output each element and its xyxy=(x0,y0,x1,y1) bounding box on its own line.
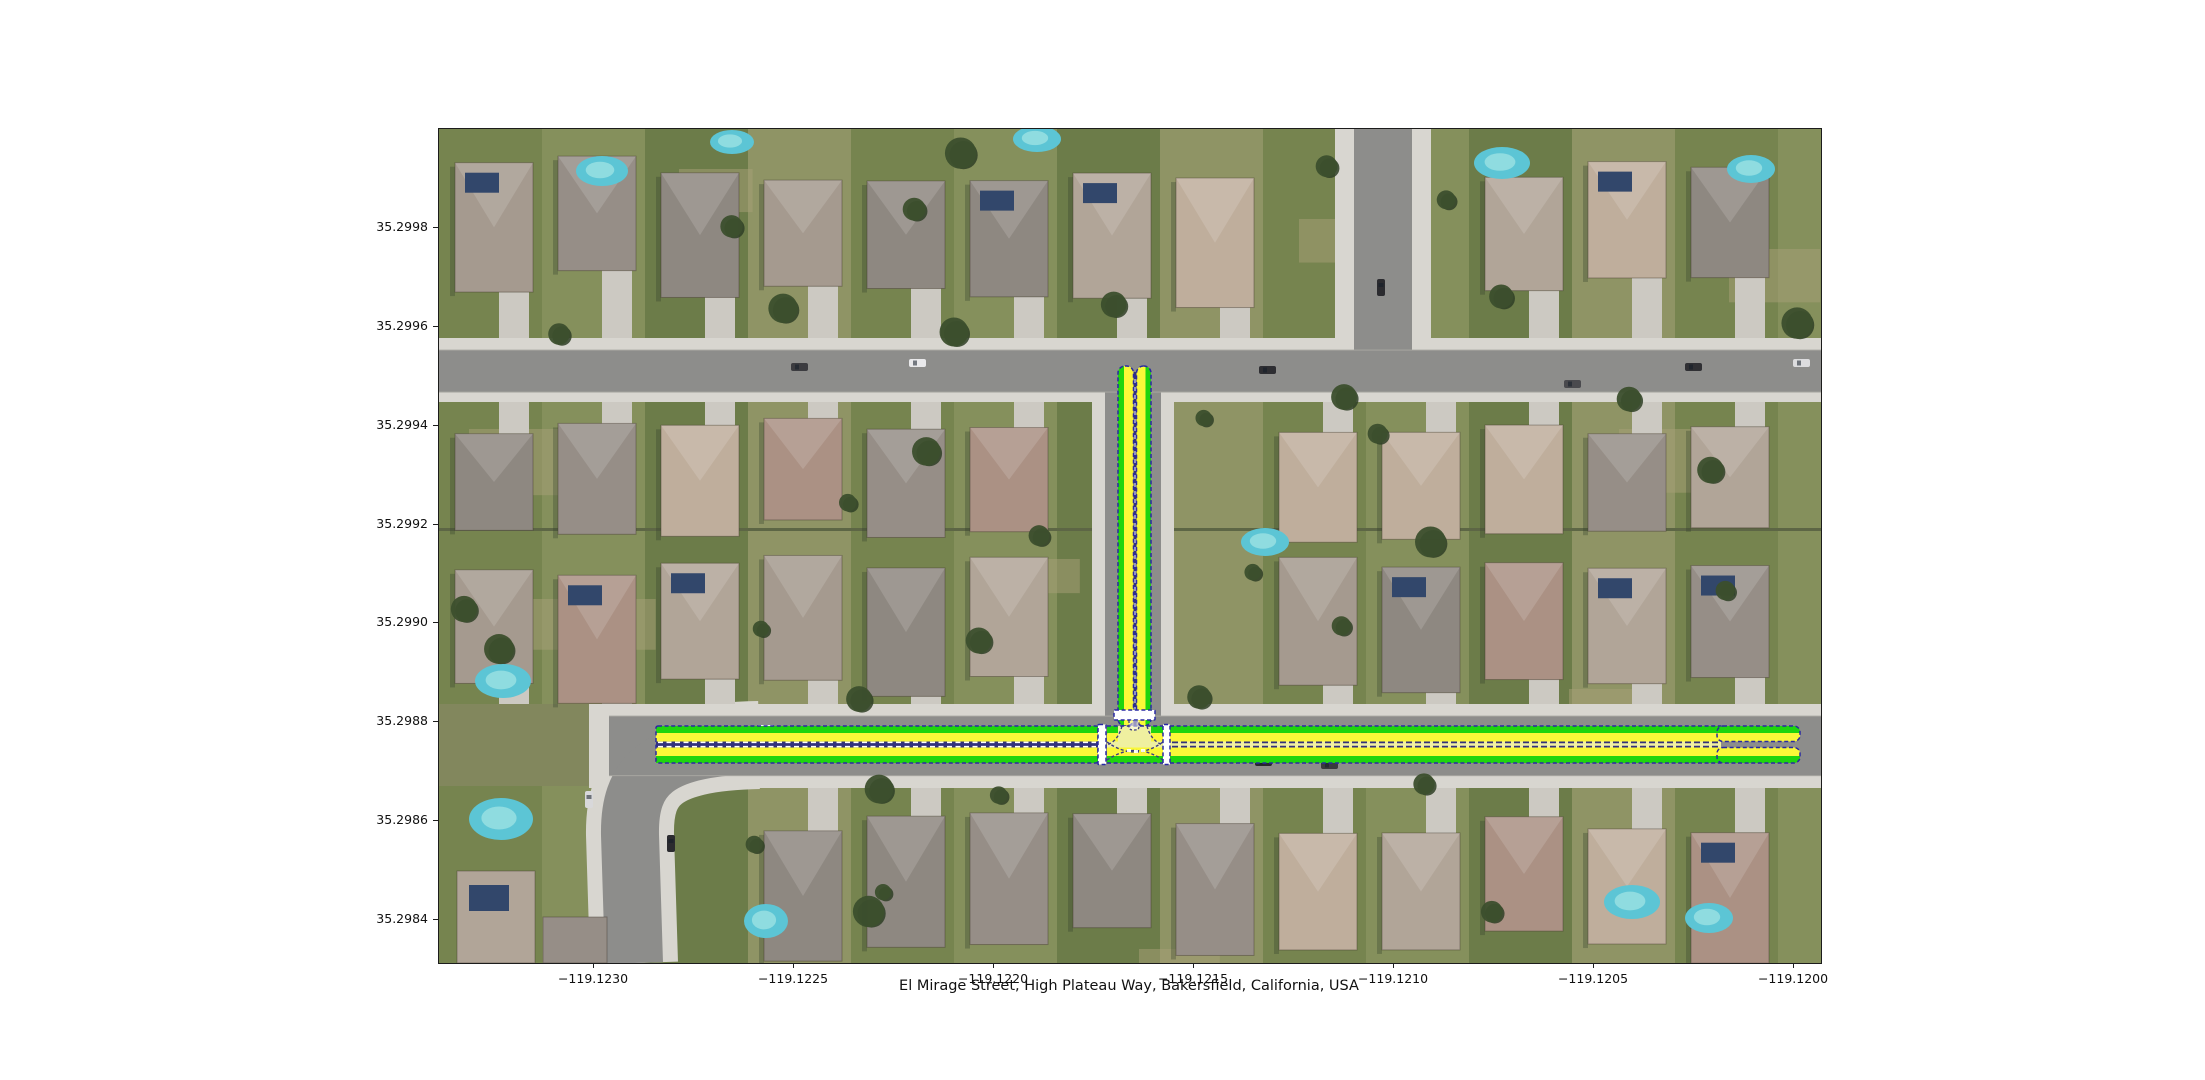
car xyxy=(1377,279,1385,296)
tree xyxy=(875,884,891,900)
y-tick-mark xyxy=(433,524,438,525)
y-tick-mark xyxy=(433,721,438,722)
tree xyxy=(1316,155,1338,177)
car xyxy=(791,363,808,371)
tree xyxy=(746,836,763,853)
solar-panel xyxy=(1598,578,1632,598)
solar-panel xyxy=(568,585,602,605)
tree xyxy=(548,323,570,345)
tree xyxy=(1617,387,1642,412)
tree xyxy=(720,215,742,237)
y-tick-mark xyxy=(433,820,438,821)
tree xyxy=(990,786,1007,803)
tree xyxy=(1481,901,1503,923)
x-tick-mark xyxy=(593,963,594,968)
map-axes xyxy=(438,128,1822,964)
y-tick-label: 35.2994 xyxy=(366,417,428,432)
y-tick-mark xyxy=(433,425,438,426)
y-tick-label: 35.2990 xyxy=(366,614,428,629)
car xyxy=(1564,380,1581,388)
solar-panel xyxy=(671,573,705,593)
tree xyxy=(966,628,992,654)
car xyxy=(585,791,593,808)
house xyxy=(457,871,535,963)
x-tick-label: −119.1200 xyxy=(1758,971,1828,986)
y-tick-label: 35.2988 xyxy=(366,713,428,728)
tree xyxy=(451,596,477,622)
solar-panel xyxy=(1392,577,1426,597)
tree xyxy=(1101,292,1127,318)
solar-panel xyxy=(1083,183,1117,203)
tree xyxy=(1331,384,1357,410)
x-tick-mark xyxy=(793,963,794,968)
tree xyxy=(1415,526,1446,557)
house xyxy=(543,917,607,963)
tree xyxy=(1489,285,1513,309)
satellite-imagery xyxy=(439,129,1821,963)
x-tick-label: −119.1215 xyxy=(1158,971,1228,986)
tree xyxy=(865,775,894,804)
u-turn-marking xyxy=(1129,721,1139,731)
tree xyxy=(1029,525,1050,546)
tree xyxy=(484,634,514,664)
solar-panel xyxy=(1701,843,1735,863)
car xyxy=(909,359,926,367)
x-tick-mark xyxy=(993,963,994,968)
tree xyxy=(1195,410,1211,426)
car xyxy=(1259,366,1276,374)
x-tick-label: −119.1205 xyxy=(1558,971,1628,986)
crosswalk-east xyxy=(1163,725,1170,765)
tree xyxy=(1697,457,1724,484)
tree xyxy=(1368,424,1388,444)
x-tick-label: −119.1230 xyxy=(558,971,628,986)
solar-panel xyxy=(1598,172,1632,192)
tree xyxy=(940,318,969,347)
tree xyxy=(1332,616,1351,635)
y-tick-label: 35.2992 xyxy=(366,516,428,531)
tree xyxy=(768,294,797,323)
x-tick-label: −119.1225 xyxy=(758,971,828,986)
car xyxy=(1793,359,1810,367)
y-tick-mark xyxy=(433,919,438,920)
x-tick-label: −119.1220 xyxy=(958,971,1028,986)
crosswalk-west xyxy=(1098,725,1106,765)
tree xyxy=(1716,581,1735,600)
tree xyxy=(1413,773,1434,794)
car xyxy=(1685,363,1702,371)
y-tick-mark xyxy=(433,227,438,228)
x-tick-mark xyxy=(1393,963,1394,968)
tree xyxy=(912,437,940,465)
y-tick-label: 35.2986 xyxy=(366,812,428,827)
tree xyxy=(839,494,856,511)
matplotlib-figure: El Mirage Street, High Plateau Way, Bake… xyxy=(0,0,2205,1080)
car xyxy=(667,835,675,852)
tree xyxy=(1187,685,1211,709)
solar-panel xyxy=(465,173,499,193)
tree xyxy=(846,686,872,712)
tree xyxy=(903,198,926,221)
tree xyxy=(945,137,976,168)
crosswalk-north xyxy=(1114,710,1155,720)
y-tick-mark xyxy=(433,622,438,623)
x-tick-label: −119.1210 xyxy=(1358,971,1428,986)
x-tick-mark xyxy=(1793,963,1794,968)
tree xyxy=(1437,190,1456,209)
tree xyxy=(1244,564,1261,581)
y-tick-label: 35.2984 xyxy=(366,911,428,926)
tree xyxy=(1781,307,1812,338)
x-tick-mark xyxy=(1593,963,1594,968)
tree xyxy=(753,621,769,637)
y-tick-label: 35.2996 xyxy=(366,318,428,333)
tree xyxy=(853,896,884,927)
y-tick-mark xyxy=(433,326,438,327)
x-tick-mark xyxy=(1193,963,1194,968)
y-tick-label: 35.2998 xyxy=(366,219,428,234)
solar-panel xyxy=(980,191,1014,211)
